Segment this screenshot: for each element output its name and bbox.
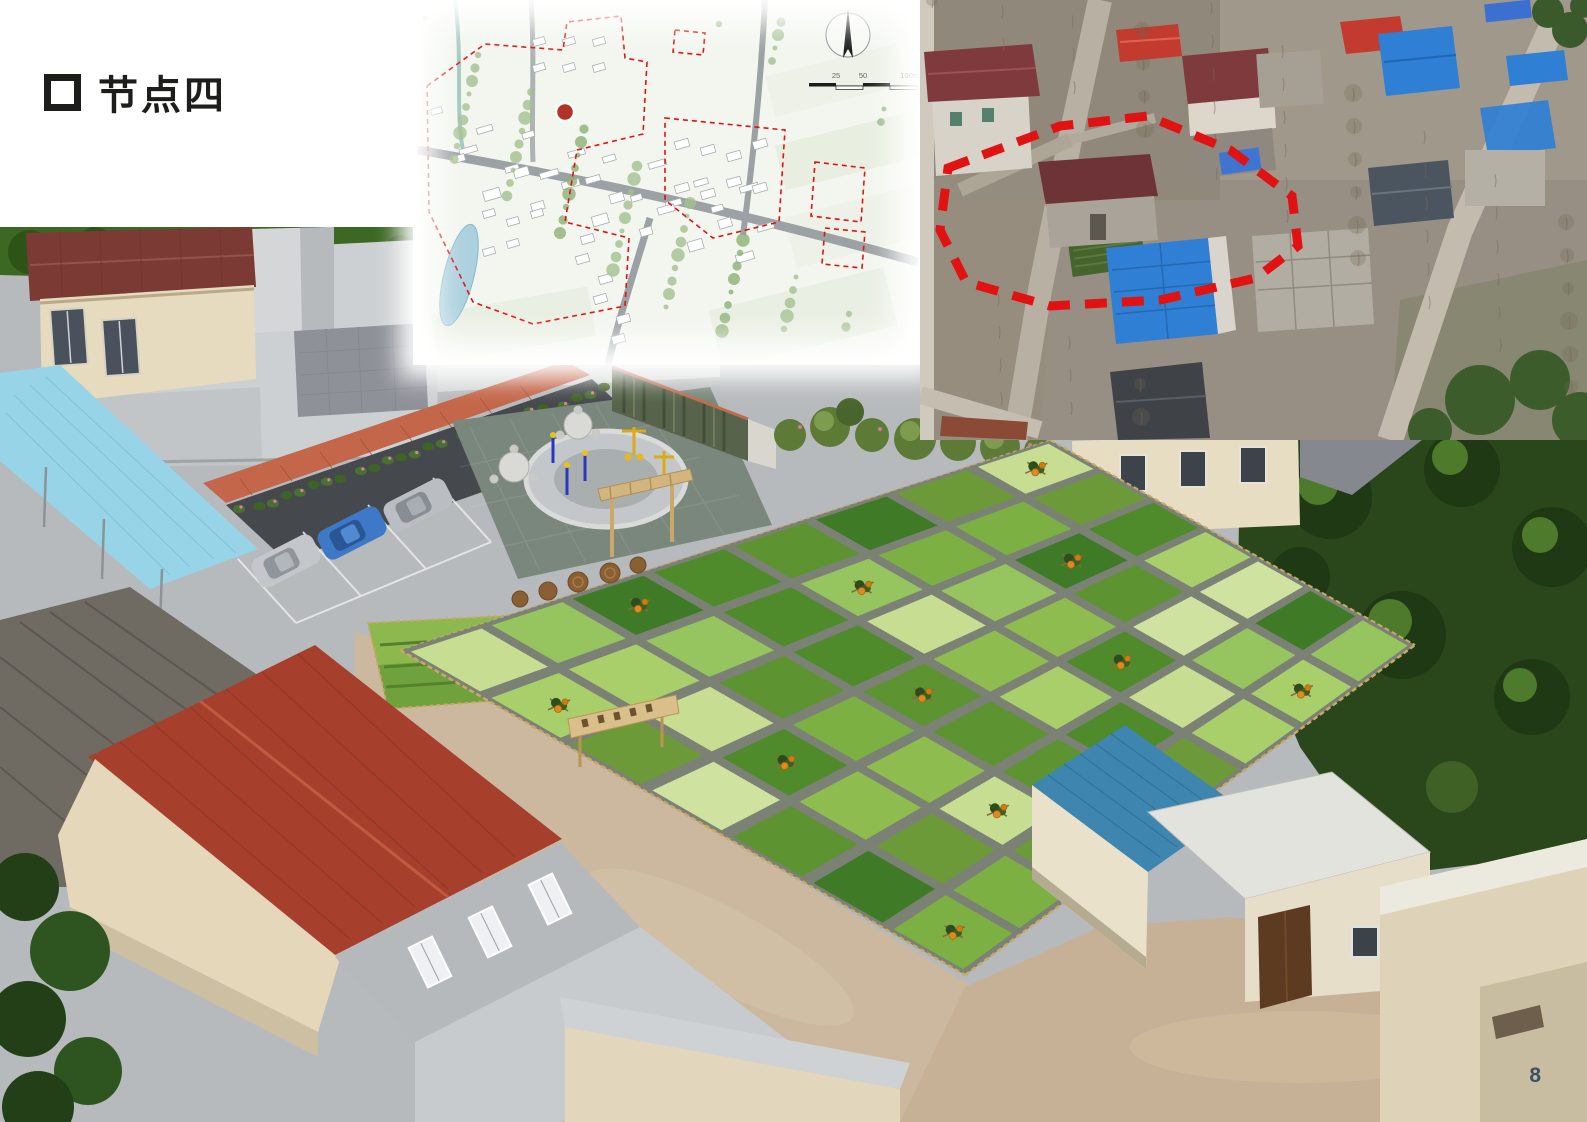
- presentation-slide: 25 50 100m: [0, 0, 1587, 1122]
- scale-label-50: 50: [859, 71, 867, 80]
- site-plan-map: 25 50 100m: [413, 0, 920, 365]
- paved-courtyard: [294, 323, 428, 417]
- aerial-svg: [920, 0, 1587, 440]
- aerial-photo: [920, 0, 1587, 440]
- page-title: 节点四: [44, 63, 227, 121]
- scale-label-100m: 100m: [900, 71, 919, 80]
- page-title-text: 节点四: [98, 63, 227, 121]
- bottom-right-building: [1380, 839, 1587, 1122]
- square-bullet-icon: [44, 74, 81, 111]
- site-location-marker: [556, 103, 574, 121]
- small-window: [1352, 927, 1378, 957]
- scale-label-25: 25: [832, 71, 840, 80]
- site-plan-svg: 25 50 100m: [413, 0, 920, 365]
- page-number: 8: [1529, 1064, 1541, 1088]
